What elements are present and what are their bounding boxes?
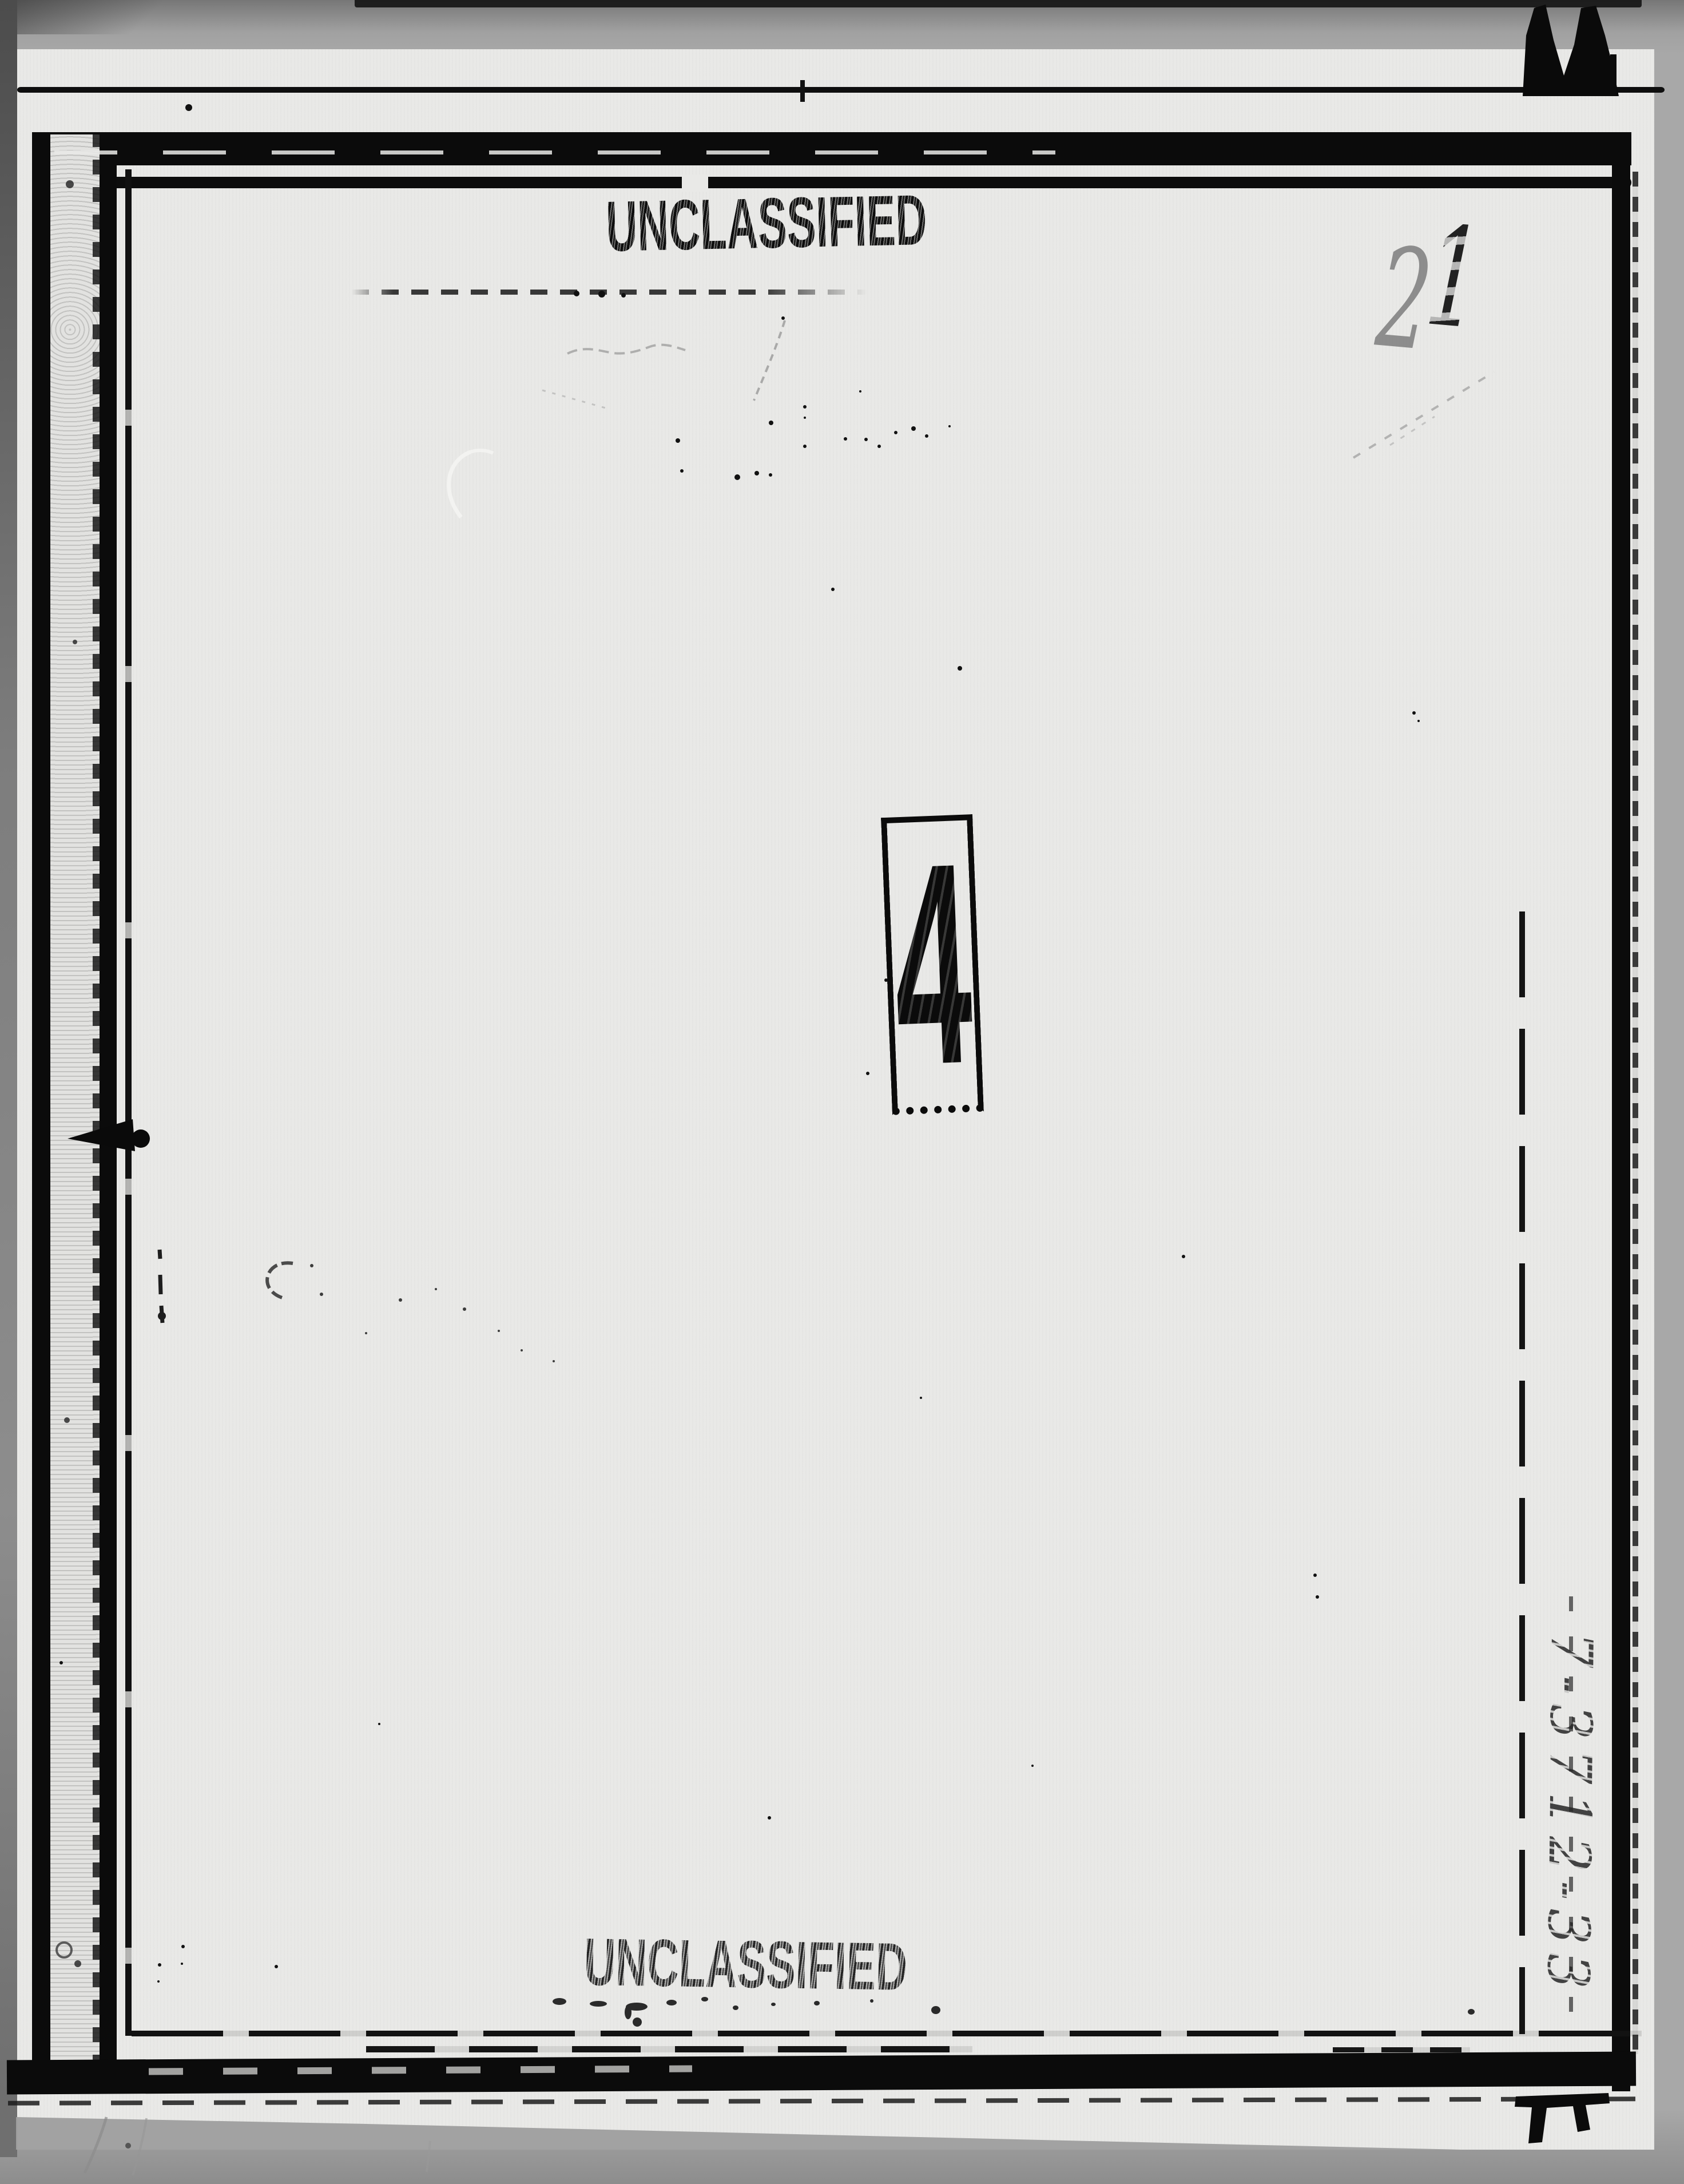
binding-ragged-band — [32, 132, 50, 2091]
unclassified-stamp-bottom: UNCLASSIFIED — [583, 1924, 908, 2005]
border-frame-top-distress — [54, 150, 1055, 154]
dotted-rule-below-stamp — [352, 290, 867, 295]
binding-black-bar — [100, 132, 117, 2091]
tab-number: 4 — [890, 848, 975, 1080]
inner-bottom-rule-1 — [132, 2031, 1642, 2036]
inner-bottom-rule-2 — [366, 2046, 972, 2052]
border-frame-right-distress — [1633, 172, 1638, 2054]
handwritten-page-number: 21 — [1372, 229, 1479, 374]
page-top-rule — [17, 87, 1665, 93]
scan-edge-black-bar — [355, 0, 1642, 7]
tab-number-box: 4 — [881, 814, 984, 1115]
border-frame-right — [1612, 132, 1630, 2091]
unclassified-stamp-top: UNCLASSIFIED — [605, 180, 928, 268]
inner-right-dashed-rule — [1519, 911, 1525, 2034]
handwritten-reference-number: 7-3712-33 — [1534, 1631, 1605, 1997]
scanned-document-canvas: UNCLASSIFIED UNCLASSIFIED 21 4 7-3712-33 — [0, 0, 1684, 2184]
page-left-edge-shadow — [0, 0, 17, 2157]
border-frame-top — [32, 132, 1631, 165]
scanner-top-shadow — [0, 0, 1684, 54]
inner-bottom-rule-3 — [1333, 2047, 1470, 2052]
border-frame-left-rule — [125, 169, 132, 2036]
scanner-top-left-shadow — [0, 0, 172, 34]
